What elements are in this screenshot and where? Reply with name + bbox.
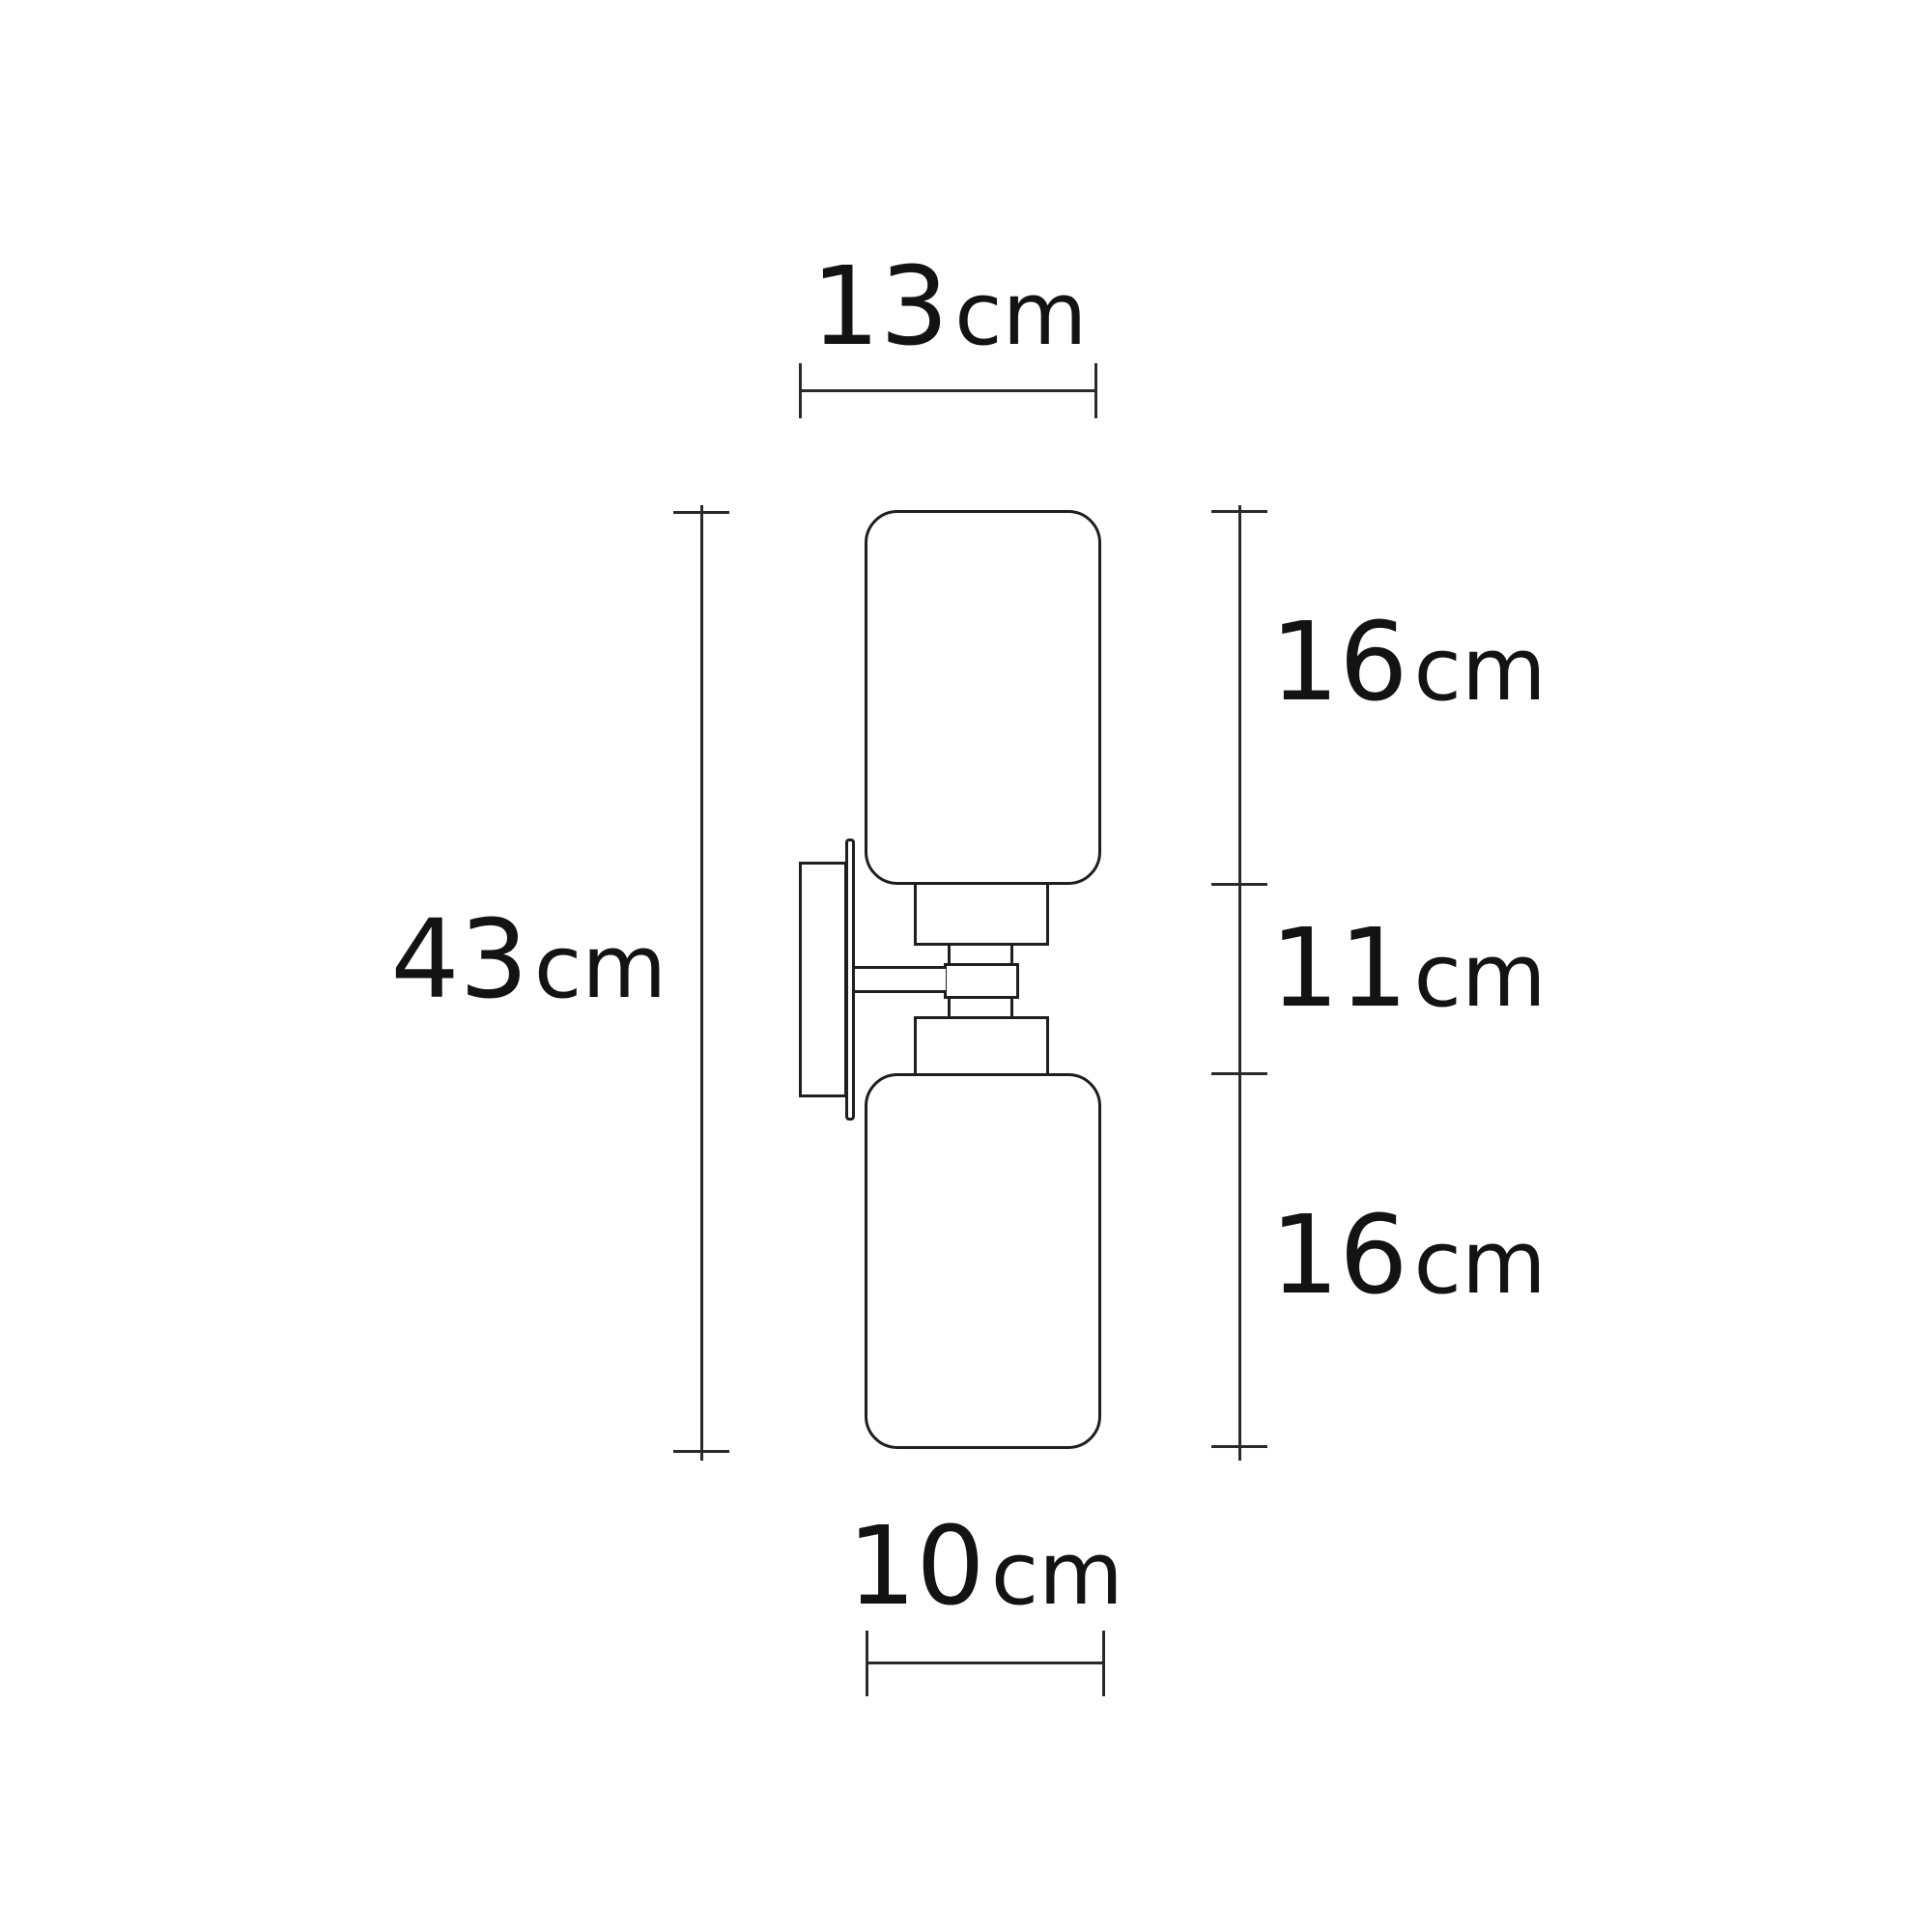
top-width-left-tick (799, 363, 802, 418)
mounting-arm-outline (853, 966, 946, 993)
upper-shade-outline (865, 510, 1101, 885)
bottom-width-left-tick (866, 1631, 868, 1696)
overall-height-dimension-label: 43cm (377, 906, 667, 1014)
upper-shade-height-value: 16 (1270, 609, 1408, 717)
lower-shade-height-unit: cm (1414, 1220, 1547, 1307)
segment-dimension-line (1238, 505, 1241, 1461)
lower-socket-outline (914, 1016, 1049, 1076)
upper-shade-height-unit: cm (1414, 627, 1547, 714)
dimension-diagram-canvas: 13cm 43cm 16cm 11cm 16cm 10cm (0, 0, 1932, 1932)
overall-height-dimension-line (700, 505, 703, 1461)
bottom-width-value: 10 (847, 1513, 985, 1621)
middle-height-label: 11cm (1270, 915, 1547, 1023)
segment-tick-lower-middle (1211, 1072, 1267, 1075)
overall-height-unit: cm (534, 924, 667, 1011)
middle-height-unit: cm (1414, 933, 1547, 1020)
top-width-dimension-line (801, 389, 1097, 392)
upper-neck-outline (948, 946, 1013, 963)
lower-shade-height-value: 16 (1270, 1202, 1408, 1310)
bottom-width-right-tick (1102, 1631, 1105, 1696)
overall-height-bottom-tick (673, 1450, 729, 1453)
middle-height-value: 11 (1270, 915, 1408, 1023)
top-width-value: 13 (811, 253, 950, 361)
segment-tick-bottom (1211, 1445, 1267, 1448)
bottom-width-dimension-label: 10cm (867, 1513, 1104, 1621)
upper-socket-outline (914, 882, 1049, 946)
wall-plate-outline (799, 862, 847, 1097)
lower-neck-outline (948, 999, 1013, 1016)
segment-tick-top (1211, 510, 1267, 513)
top-width-right-tick (1094, 363, 1097, 418)
connector-block-outline (944, 963, 1019, 999)
lower-shade-outline (865, 1073, 1101, 1449)
overall-height-top-tick (673, 511, 729, 514)
overall-height-value: 43 (390, 906, 528, 1014)
wall-plate-edge-outline (845, 838, 855, 1121)
segment-tick-upper-middle (1211, 883, 1267, 886)
top-width-dimension-label: 13cm (801, 253, 1097, 361)
top-width-unit: cm (954, 271, 1087, 358)
bottom-width-unit: cm (991, 1531, 1123, 1618)
lower-shade-height-label: 16cm (1270, 1202, 1547, 1310)
upper-shade-height-label: 16cm (1270, 609, 1547, 717)
bottom-width-dimension-line (867, 1662, 1104, 1664)
